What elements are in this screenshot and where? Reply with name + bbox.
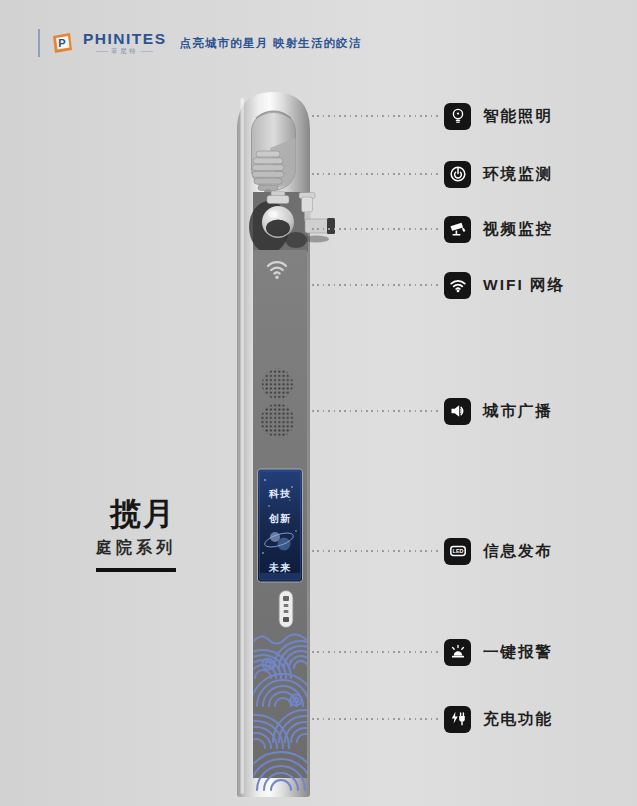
feature-smart-lighting: 智能照明 bbox=[444, 102, 553, 130]
feature-information-release: LED 信息发布 bbox=[444, 537, 553, 565]
led-icon-text: LED bbox=[452, 548, 463, 554]
cctv-camera-icon bbox=[444, 216, 471, 243]
title-underline bbox=[96, 568, 176, 572]
leader-line-wifi bbox=[312, 284, 442, 286]
charging-icon bbox=[444, 706, 471, 733]
feature-label: 一键报警 bbox=[483, 642, 553, 663]
product-series: 庭院系列 bbox=[96, 538, 176, 559]
feature-label: WIFI 网络 bbox=[483, 275, 565, 296]
screen-text-line3: 未来 bbox=[268, 562, 291, 573]
leader-line-video bbox=[312, 228, 442, 230]
feature-label: 城市广播 bbox=[483, 401, 553, 422]
feature-label: 智能照明 bbox=[483, 106, 553, 127]
leader-line-info bbox=[312, 550, 442, 552]
leader-line-smart-lighting bbox=[312, 115, 442, 117]
wifi-icon bbox=[444, 272, 471, 299]
pole-control-panel bbox=[279, 591, 293, 628]
pole-led-screen: 科技 创新 未来 bbox=[258, 469, 303, 582]
screen-text-line1: 科技 bbox=[268, 488, 291, 499]
feature-one-key-alarm: 一键报警 bbox=[444, 638, 553, 666]
leader-line-charging bbox=[312, 718, 442, 720]
leader-line-broadcast bbox=[312, 410, 442, 412]
feature-label: 环境监测 bbox=[483, 164, 553, 185]
feature-city-broadcast: 城市广播 bbox=[444, 397, 553, 425]
product-title: 揽月 bbox=[96, 497, 176, 531]
feature-environment-monitoring: 环境监测 bbox=[444, 160, 553, 188]
leader-line-environment bbox=[312, 173, 442, 175]
alarm-icon bbox=[444, 639, 471, 666]
speaker-icon bbox=[444, 398, 471, 425]
feature-charging: 充电功能 bbox=[444, 705, 553, 733]
environment-monitor-icon bbox=[444, 161, 471, 188]
feature-wifi-network: WIFI 网络 bbox=[444, 271, 565, 299]
screen-text-line2: 创新 bbox=[268, 513, 291, 524]
feature-label: 信息发布 bbox=[483, 541, 553, 562]
feature-label: 视频监控 bbox=[483, 219, 553, 240]
led-screen-icon: LED bbox=[444, 538, 471, 565]
lightbulb-icon bbox=[444, 103, 471, 130]
feature-video-surveillance: 视频监控 bbox=[444, 215, 553, 243]
feature-label: 充电功能 bbox=[483, 709, 553, 730]
pole-dome-camera bbox=[262, 191, 294, 238]
product-title-block: 揽月 庭院系列 bbox=[96, 497, 176, 572]
leader-line-alarm bbox=[312, 651, 442, 653]
pole-camera-cluster bbox=[249, 191, 335, 253]
product-poster: P PHINITES 菲尼特 点亮城市的星月 映射生活的皎洁 bbox=[0, 0, 637, 806]
